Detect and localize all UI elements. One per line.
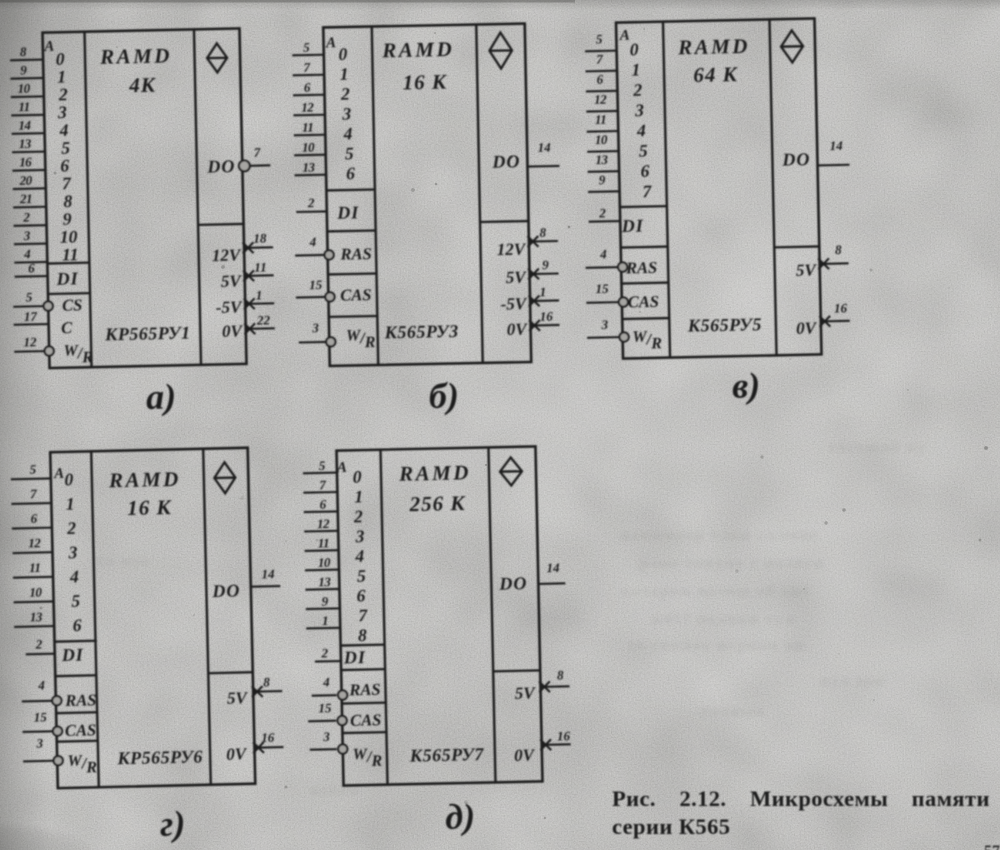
svg-text:5: 5 [26,289,33,304]
svg-text:17: 17 [24,309,38,324]
svg-text:A: A [43,39,54,55]
svg-text:13: 13 [318,574,331,589]
svg-text:КР565РУ6: КР565РУ6 [116,746,203,768]
svg-text:RAS: RAS [625,258,658,278]
svg-text:6: 6 [640,161,649,181]
svg-text:A: A [53,466,64,482]
svg-text:5V: 5V [506,268,528,287]
svg-text:2: 2 [340,84,350,104]
svg-text:16: 16 [19,154,32,169]
svg-text:21: 21 [19,191,32,206]
svg-text:4: 4 [342,123,352,143]
svg-text:C: C [61,318,73,337]
svg-text:-5V: -5V [216,297,244,317]
svg-text:13: 13 [302,160,315,175]
svg-text:1: 1 [256,288,263,303]
svg-text:11: 11 [302,120,314,135]
svg-text:20: 20 [18,173,32,188]
svg-text:57: 57 [984,843,1000,850]
svg-text:3: 3 [341,103,351,123]
svg-text:1: 1 [322,613,328,628]
svg-text:8: 8 [263,674,270,689]
svg-text:DO: DO [211,580,240,601]
svg-text:в): в) [732,365,761,406]
svg-text:10: 10 [302,140,315,155]
svg-text:рлне тонуме с полвсн: рлне тонуме с полвсн [640,555,825,572]
svg-text:15: 15 [595,281,609,296]
svg-text:13: 13 [30,609,43,624]
svg-text:12: 12 [28,535,41,550]
svg-text:16: 16 [557,728,571,743]
svg-text:5: 5 [639,140,648,160]
svg-text:15: 15 [309,277,323,292]
svg-text:6: 6 [346,163,355,183]
svg-text:2: 2 [35,636,43,651]
svg-text:14: 14 [261,566,275,581]
svg-text:RAS: RAS [348,680,381,700]
svg-text:серии К565: серии К565 [612,814,730,839]
svg-text:8: 8 [835,242,842,257]
svg-text:8: 8 [557,667,564,682]
svg-text:14: 14 [18,117,31,132]
svg-text:RAS: RAS [64,690,97,710]
svg-text:8: 8 [358,625,367,645]
svg-text:11: 11 [62,244,79,264]
svg-text:16 К: 16 К [127,495,173,520]
svg-text:RAS: RAS [339,244,372,264]
svg-text:A: A [336,460,347,476]
svg-text:22: 22 [256,312,271,327]
svg-text:д): д) [445,796,476,837]
svg-text:DO: DO [781,149,810,170]
svg-text:тйromad ну: тйromad ну [828,439,926,456]
svg-text:11: 11 [18,99,30,114]
svg-text:DO: DO [491,151,520,172]
svg-text:5V: 5V [796,260,818,279]
svg-text:12: 12 [301,100,314,115]
svg-text:DO: DO [206,156,235,177]
svg-text:4: 4 [322,674,330,689]
svg-text:12V: 12V [497,240,527,260]
svg-text:КР565РУ1: КР565РУ1 [104,323,191,345]
svg-text:14: 14 [829,138,843,153]
svg-text:6: 6 [356,585,365,605]
svg-text:RAMD: RAMD [108,467,181,493]
svg-text:4: 4 [308,234,316,249]
svg-text:0V: 0V [222,321,244,340]
svg-text:4: 4 [37,677,45,692]
svg-text:RAMD: RAMD [99,43,172,69]
svg-text:1: 1 [539,284,546,299]
svg-text:12: 12 [594,92,607,107]
svg-text:2: 2 [320,645,328,660]
svg-text:DI: DI [343,647,366,667]
svg-text:4: 4 [69,566,79,586]
svg-text:те снижес игрном он: те снижес игрном он [628,637,805,654]
svg-text:18: 18 [253,230,267,245]
svg-text:CAS: CAS [350,710,382,730]
svg-text:16: 16 [261,730,275,745]
svg-text:DI: DI [55,268,78,288]
svg-text:7: 7 [254,145,261,160]
svg-text:DI: DI [61,645,84,666]
svg-text:DI: DI [621,216,644,236]
svg-text:RAMD: RAMD [677,34,750,60]
svg-text:5: 5 [71,591,80,611]
svg-text:тл нуо: тл нуо [96,553,150,570]
svg-text:6: 6 [73,615,82,635]
svg-text:5V: 5V [515,683,537,702]
svg-text:14: 14 [537,140,551,155]
svg-text:б): б) [428,375,459,416]
svg-text:11: 11 [29,560,41,575]
svg-text:0: 0 [338,44,347,64]
svg-text:3: 3 [35,735,43,750]
svg-text:-5V: -5V [500,294,528,314]
svg-text:11: 11 [318,535,330,550]
svg-text:11: 11 [595,112,607,127]
svg-text:3: 3 [600,317,608,332]
svg-text:A: A [619,28,630,44]
svg-text:2: 2 [353,506,363,526]
svg-text:0V: 0V [226,744,248,763]
svg-text:12: 12 [317,516,330,531]
svg-text:3: 3 [354,526,364,546]
svg-text:0: 0 [64,469,73,489]
svg-text:8: 8 [539,225,546,240]
svg-text:16 К: 16 К [402,70,448,95]
svg-text:пул зом: пул зом [820,673,885,690]
svg-text:Рис. 2.12. Микросхемы памяти: Рис. 2.12. Микросхемы памяти [612,786,990,811]
svg-text:9: 9 [542,257,549,272]
svg-text:1: 1 [340,64,349,84]
svg-text:напммолр тлом снлмие: напммолр тлом снлмие [620,527,819,544]
svg-text:4: 4 [599,246,607,261]
svg-text:3: 3 [322,729,330,744]
svg-text:DI: DI [336,202,359,222]
svg-text:4К: 4К [128,73,157,98]
svg-text:г): г) [160,803,186,844]
svg-text:64 К: 64 К [693,62,739,87]
svg-text:0: 0 [629,39,638,59]
svg-text:4: 4 [354,546,364,566]
svg-text:4: 4 [636,120,646,140]
svg-text:11: 11 [254,259,267,274]
svg-text:1: 1 [631,59,640,79]
svg-text:16: 16 [540,309,554,324]
svg-text:2: 2 [632,80,642,100]
svg-text:14: 14 [546,560,560,575]
svg-text:2: 2 [307,195,315,210]
svg-text:CS: CS [62,295,83,314]
svg-text:RAMD: RAMD [398,460,471,486]
svg-text:а): а) [146,376,177,417]
svg-text:CAS: CAS [65,720,97,740]
svg-text:256 К: 256 К [408,491,466,516]
svg-text:3: 3 [67,542,77,562]
svg-text:5: 5 [345,143,354,163]
svg-text:0V: 0V [796,318,818,337]
svg-text:3: 3 [634,100,644,120]
svg-text:ж457 полном туж: ж457 полном туж [650,611,797,628]
svg-text:10: 10 [29,584,42,599]
svg-text:DO: DO [498,573,527,594]
svg-text:6: 6 [28,260,35,275]
svg-text:2: 2 [66,518,76,538]
svg-text:3: 3 [311,320,319,335]
svg-text:2: 2 [598,205,606,220]
svg-text:13: 13 [19,136,32,151]
svg-text:0: 0 [352,467,361,487]
svg-text:0V: 0V [507,320,529,339]
svg-text:12V: 12V [212,245,242,265]
svg-text:15: 15 [318,700,332,715]
svg-text:5V: 5V [221,271,243,290]
svg-text:1: 1 [66,494,75,514]
svg-text:16: 16 [834,300,848,315]
svg-text:10: 10 [595,132,608,147]
svg-text:RAMD: RAMD [381,37,454,62]
svg-text:5: 5 [357,566,366,586]
svg-text:0V: 0V [514,746,536,765]
svg-text:1: 1 [354,486,363,506]
svg-text:CAS: CAS [628,292,660,312]
svg-text:олтором незмы об смт: олтором незмы об смт [622,583,812,600]
svg-text:10: 10 [318,555,331,570]
svg-text:A: A [325,35,336,51]
svg-text:5V: 5V [227,688,249,707]
svg-text:13: 13 [595,152,608,167]
svg-text:12: 12 [23,334,37,349]
svg-text:полнын: полнын [700,703,766,720]
svg-text:CAS: CAS [340,285,372,305]
svg-text:К565РУ5: К565РУ5 [687,314,762,336]
svg-text:К565РУ7: К565РУ7 [409,744,485,766]
svg-text:15: 15 [34,709,48,724]
svg-text:10: 10 [18,81,31,96]
svg-text:К565РУ3: К565РУ3 [383,321,458,342]
